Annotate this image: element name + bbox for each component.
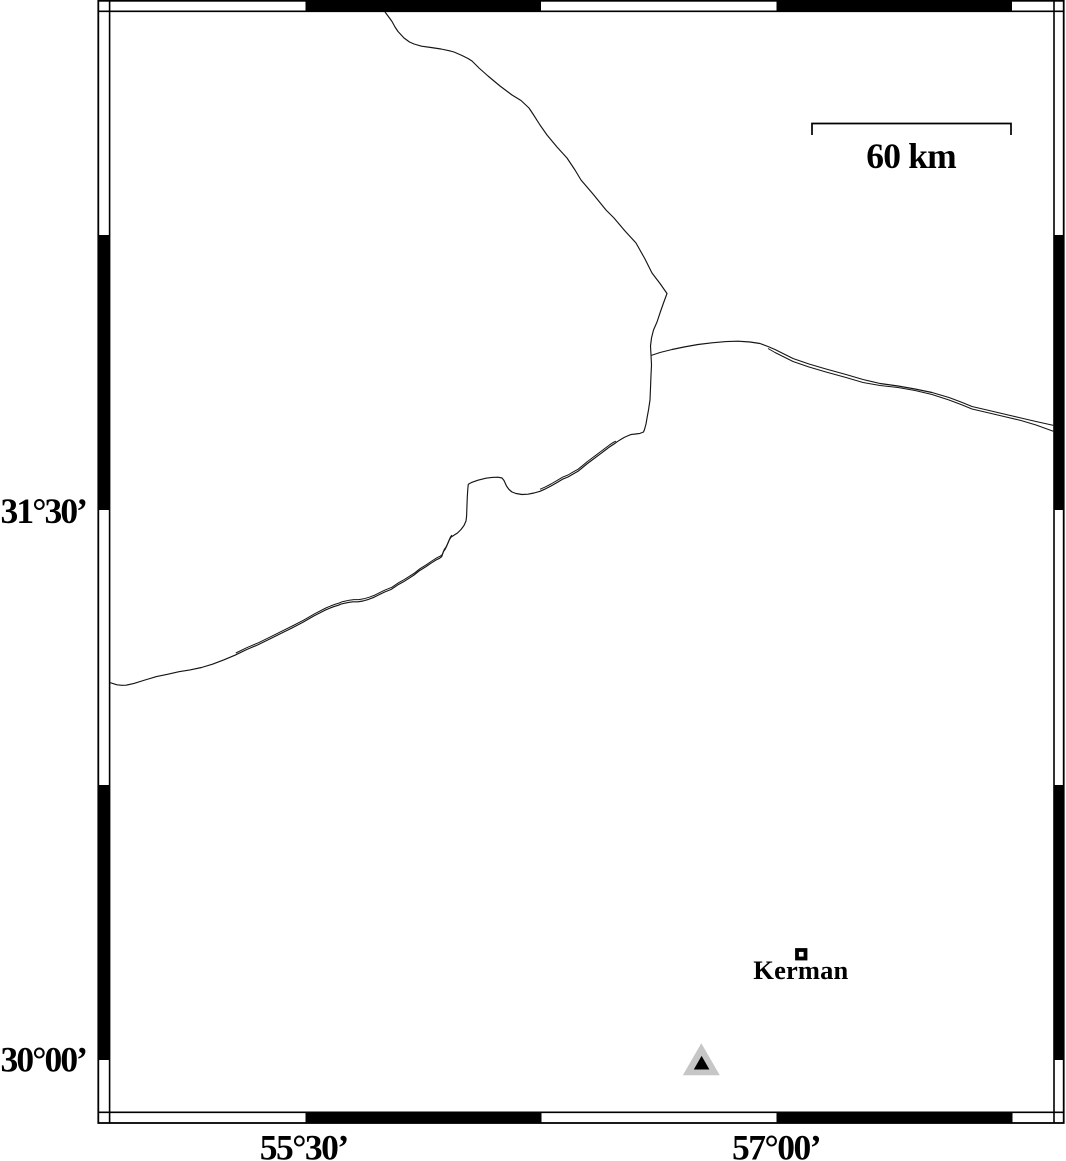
svg-text:31°30’: 31°30’ [1,491,89,531]
svg-text:Kerman: Kerman [753,955,848,985]
svg-text:55°30’: 55°30’ [260,1128,350,1161]
svg-text:60 km: 60 km [866,136,957,176]
svg-text:57°00’: 57°00’ [732,1128,822,1161]
svg-text:30°00’: 30°00’ [1,1040,89,1080]
